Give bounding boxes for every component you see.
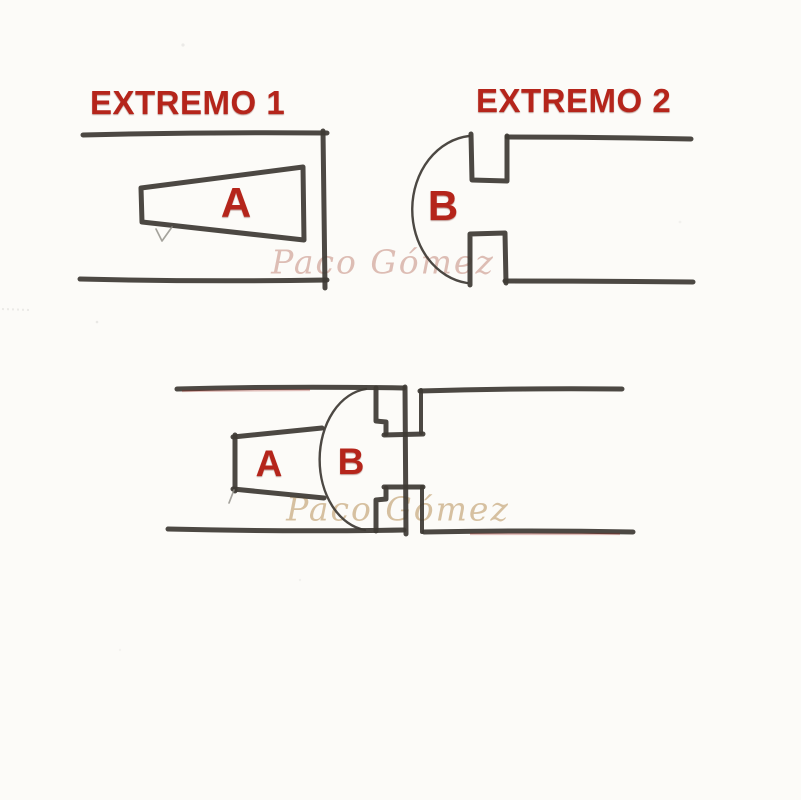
paper-speck (181, 43, 184, 46)
paper-speck (679, 221, 682, 224)
e1-channel-top-wall (83, 133, 327, 135)
figure2-title: EXTREMO 2 (476, 82, 671, 120)
assembled-figure (168, 387, 633, 534)
e2-channel-bottom-wall (505, 281, 693, 282)
as-right-channel-top-wall (420, 389, 622, 391)
as-left-channel-top-wall (177, 387, 404, 389)
as-top-slot-bottom (384, 434, 423, 435)
part-a-label-assembled: A (256, 443, 283, 485)
e1-stray-pencil-mark (156, 227, 172, 241)
paper-speck (119, 649, 121, 651)
e1-channel-bottom-wall (80, 279, 327, 281)
scanned-diagram-page: Paco Gómez Paco Gómez (0, 0, 801, 800)
e2-cap-bottom-slot (470, 233, 506, 285)
as-pin-a-bottom-edge (233, 489, 324, 498)
part-b-label-top: B (428, 182, 458, 230)
paper-speck-streak (2, 309, 30, 310)
figure1-title: EXTREMO 1 (90, 84, 285, 122)
as-pin-a-top-edge (233, 428, 322, 437)
paper-speck (299, 579, 301, 581)
as-pin-a-stray-tick (229, 490, 234, 503)
part-b-label-assembled: B (338, 441, 365, 483)
paper-speck (96, 321, 99, 324)
as-left-channel-bottom-wall (168, 529, 404, 531)
as-scan-red-tint-top (182, 390, 310, 391)
e2-cap-top-slot (471, 134, 507, 181)
e2-channel-top-wall (507, 137, 691, 139)
as-right-channel-bottom-wall (424, 531, 633, 532)
as-cap-bottom-prong-step (376, 488, 386, 531)
as-cap-top-prong-step (376, 388, 386, 434)
extremo1-figure (80, 131, 327, 288)
part-a-label-top: A (221, 179, 251, 227)
e1-channel-end-wall (323, 131, 325, 288)
as-left-channel-end-wall (405, 387, 406, 534)
